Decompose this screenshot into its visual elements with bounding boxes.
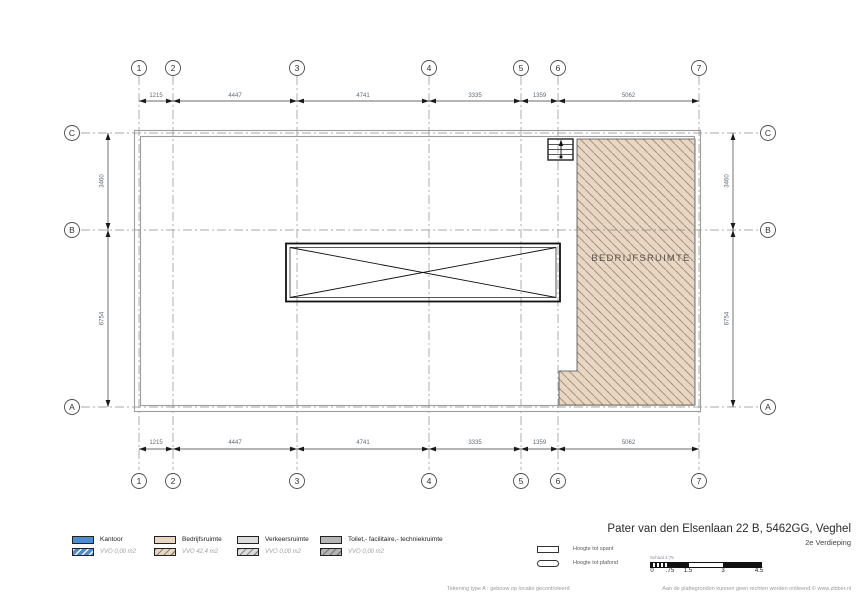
row-bubble-B: B (65, 223, 80, 238)
dim-value: 5062 (622, 93, 636, 99)
svg-text:A: A (69, 402, 75, 412)
grid-bubble-2: 2 (166, 61, 181, 76)
svg-text:6: 6 (556, 476, 561, 486)
bedrijfsruimte-hatch-swatch (154, 548, 176, 556)
bedrijfsruimte-swatch (154, 536, 176, 544)
grid-bubble-4: 4 (422, 474, 437, 489)
stairs-start-dot (560, 156, 563, 159)
toilet-hatch-swatch (320, 548, 342, 556)
scale-segment (688, 563, 724, 567)
dimension-values-top: 1215 4447 4741 3335 1359 5062 (149, 93, 636, 99)
svg-text:1: 1 (137, 476, 142, 486)
legend-label: Verkeersruimte (265, 536, 309, 543)
legend-item-bedrijfsruimte: Bedrijfsruimte VVO 42,4 m2 (154, 535, 222, 559)
grid-bubble-4: 4 (422, 61, 437, 76)
hoogte-spant-label: Hoogte tot spant (573, 546, 613, 552)
svg-text:C: C (69, 128, 75, 138)
dim-value: 3460 (100, 174, 106, 188)
scale-segment (724, 563, 761, 567)
height-legend: Hoogte tot spant Hoogte tot plafond (537, 545, 618, 573)
dim-value: 3335 (468, 440, 482, 446)
svg-text:5: 5 (519, 63, 524, 73)
row-bubble-B: B (761, 223, 776, 238)
svg-text:2: 2 (171, 63, 176, 73)
dim-value: 5062 (622, 440, 636, 446)
dim-value: 1215 (149, 93, 163, 99)
svg-text:7: 7 (697, 476, 702, 486)
kantoor-hatch-swatch (72, 548, 94, 556)
bedrijfsruimte-area (559, 139, 695, 405)
floorplan-drawing: BEDRIJFSRUIMTE 1215 4447 4741 3335 (0, 0, 865, 520)
row-bubble-C: C (761, 126, 776, 141)
dim-value: 3335 (468, 93, 482, 99)
dim-value: 6754 (100, 311, 106, 325)
footer-note-left: Tekening type A : gebouw op locatie geco… (447, 586, 570, 592)
legend-vvo: VVO 0,00 m2 (348, 549, 384, 555)
legend-label: Toilet,- facilitaire,- techniekruimte (348, 536, 443, 543)
scale-label: Schaal 1:75 (650, 555, 770, 560)
grid-bubble-7: 7 (692, 61, 707, 76)
svg-text:A: A (765, 402, 771, 412)
scale-tick: .75 (666, 568, 674, 574)
row-bubble-A: A (65, 400, 80, 415)
dim-value: 1359 (533, 93, 547, 99)
dim-value: 4447 (228, 93, 242, 99)
legend-vvo: VVO 42,4 m2 (182, 549, 218, 555)
svg-text:2: 2 (171, 476, 176, 486)
scale-tick: 4.5 (755, 568, 763, 574)
grid-bubble-7: 7 (692, 474, 707, 489)
svg-text:4: 4 (427, 476, 432, 486)
page: BEDRIJFSRUIMTE 1215 4447 4741 3335 (0, 0, 865, 608)
grid-bubble-3: 3 (290, 61, 305, 76)
dim-value: 4741 (356, 93, 370, 99)
hoogte-plafond-swatch (537, 560, 559, 567)
svg-text:7: 7 (697, 63, 702, 73)
svg-text:C: C (765, 128, 771, 138)
scale-segment (669, 563, 688, 567)
legend-vvo: VVO 0,00 m2 (265, 549, 301, 555)
hoogte-spant-swatch (537, 546, 559, 553)
grid-bubbles-bottom: 1 2 3 4 5 6 7 (132, 474, 707, 489)
room-label: BEDRIJFSRUIMTE (591, 253, 690, 264)
hoogte-plafond-label: Hoogte tot plafond (573, 560, 618, 566)
grid-bubble-5: 5 (514, 61, 529, 76)
scale-tick: 3 (721, 568, 724, 574)
grid-bubble-1: 1 (132, 474, 147, 489)
legend-label: Bedrijfsruimte (182, 536, 222, 543)
grid-bubbles-top: 1 2 3 4 5 6 7 (132, 61, 707, 76)
dim-value: 6754 (725, 311, 731, 325)
grid-bubble-1: 1 (132, 61, 147, 76)
grid-bubble-2: 2 (166, 474, 181, 489)
svg-text:1: 1 (137, 63, 142, 73)
scale-bar: Schaal 1:75 0 .75 1.5 3 4.5 (650, 555, 770, 581)
dim-value: 4447 (228, 440, 242, 446)
dimension-values-bottom: 1215 4447 4741 3335 1359 5062 (149, 440, 636, 446)
dim-value: 1215 (149, 440, 163, 446)
svg-text:4: 4 (427, 63, 432, 73)
scale-tick-labels: 0 .75 1.5 3 4.5 (650, 568, 760, 576)
grid-bubble-6: 6 (551, 61, 566, 76)
grid-bubble-5: 5 (514, 474, 529, 489)
scale-tick: 0 (650, 568, 653, 574)
legend-item-toilet: Toilet,- facilitaire,- techniekruimte VV… (320, 535, 443, 559)
dim-value: 3460 (725, 174, 731, 188)
svg-text:5: 5 (519, 476, 524, 486)
verkeersruimte-swatch (237, 536, 259, 544)
scale-segment (651, 563, 669, 567)
drawing-title: Pater van den Elsenlaan 22 B, 5462GG, Ve… (607, 523, 851, 535)
dim-value: 1359 (533, 440, 547, 446)
svg-text:6: 6 (556, 63, 561, 73)
bedrijfsruimte-hatch (559, 139, 695, 405)
verkeersruimte-hatch-swatch (237, 548, 259, 556)
kantoor-swatch (72, 536, 94, 544)
legend-item-kantoor: Kantoor VVO 0,00 m2 (72, 535, 136, 559)
stairs (548, 139, 573, 160)
scale-tick: 1.5 (684, 568, 692, 574)
stairs-arrow (559, 140, 563, 147)
row-bubble-A: A (761, 400, 776, 415)
legend-label: Kantoor (100, 536, 123, 543)
svg-text:B: B (765, 225, 771, 235)
legend-item-verkeersruimte: Verkeersruimte VVO 0,00 m2 (237, 535, 309, 559)
svg-text:3: 3 (295, 476, 300, 486)
void-opening (286, 244, 560, 302)
row-bubble-C: C (65, 126, 80, 141)
footer-note-right: Aan de plattegronden kunnen geen rechten… (662, 586, 851, 592)
grid-bubble-6: 6 (551, 474, 566, 489)
svg-text:3: 3 (295, 63, 300, 73)
legend-vvo: VVO 0,00 m2 (100, 549, 136, 555)
svg-text:B: B (69, 225, 75, 235)
drawing-subtitle: 2e Verdieping (805, 538, 851, 547)
toilet-swatch (320, 536, 342, 544)
grid-bubble-3: 3 (290, 474, 305, 489)
dim-value: 4741 (356, 440, 370, 446)
